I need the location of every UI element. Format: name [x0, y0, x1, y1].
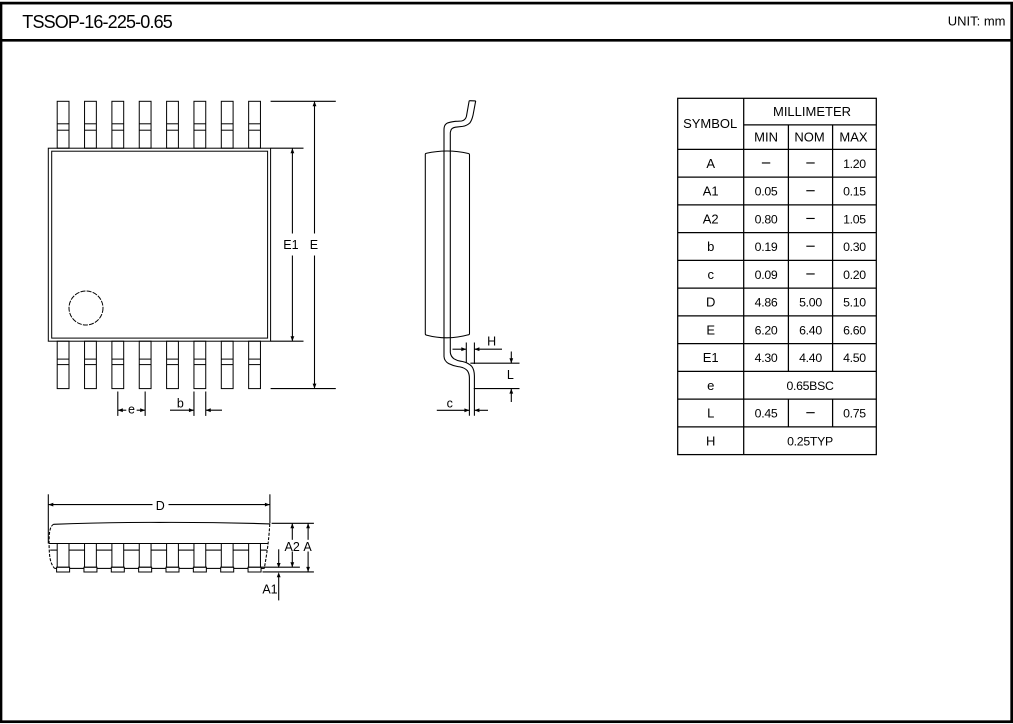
svg-text:0.45: 0.45: [755, 407, 778, 421]
svg-text:A: A: [303, 540, 312, 554]
svg-text:L: L: [707, 406, 714, 421]
svg-text:0.30: 0.30: [843, 240, 866, 254]
svg-text:A2: A2: [703, 211, 719, 226]
svg-text:A1: A1: [703, 184, 719, 199]
svg-text:0.80: 0.80: [755, 212, 778, 226]
svg-text:1.05: 1.05: [843, 212, 866, 226]
svg-text:E: E: [706, 322, 715, 337]
svg-text:e: e: [128, 402, 135, 416]
svg-text:4.30: 4.30: [755, 351, 778, 365]
svg-text:b: b: [177, 396, 184, 410]
svg-text:c: c: [447, 396, 453, 410]
svg-text:0.05: 0.05: [755, 185, 778, 199]
svg-text:1.20: 1.20: [843, 157, 866, 171]
svg-text:0.09: 0.09: [755, 268, 778, 282]
svg-text:E: E: [310, 238, 318, 252]
svg-text:0.15: 0.15: [843, 185, 866, 199]
svg-text:5.10: 5.10: [843, 296, 866, 310]
svg-text:D: D: [706, 295, 715, 310]
svg-text:4.86: 4.86: [755, 296, 778, 310]
svg-text:4.50: 4.50: [843, 351, 866, 365]
svg-text:UNIT: mm: UNIT: mm: [948, 14, 1006, 29]
svg-text:A2: A2: [285, 540, 300, 554]
svg-text:MAX: MAX: [839, 130, 868, 145]
svg-text:0.65BSC: 0.65BSC: [786, 379, 834, 393]
svg-text:H: H: [487, 334, 496, 348]
svg-text:L: L: [507, 368, 514, 382]
svg-text:E1: E1: [703, 350, 719, 365]
svg-text:e: e: [707, 378, 714, 393]
svg-text:6.20: 6.20: [755, 323, 778, 337]
svg-text:5.00: 5.00: [799, 296, 822, 310]
svg-text:A: A: [706, 156, 715, 171]
svg-text:6.40: 6.40: [799, 323, 822, 337]
svg-text:MIN: MIN: [754, 130, 778, 145]
svg-text:MILLIMETER: MILLIMETER: [773, 104, 851, 119]
svg-text:0.19: 0.19: [755, 240, 778, 254]
svg-text:A1: A1: [262, 582, 277, 596]
svg-text:c: c: [707, 267, 714, 282]
svg-text:4.40: 4.40: [799, 351, 822, 365]
svg-text:SYMBOL: SYMBOL: [683, 116, 737, 131]
svg-text:TSSOP-16-225-0.65: TSSOP-16-225-0.65: [22, 12, 172, 32]
svg-text:H: H: [706, 433, 715, 448]
svg-text:NOM: NOM: [794, 130, 824, 145]
svg-text:0.25TYP: 0.25TYP: [787, 434, 833, 448]
svg-text:6.60: 6.60: [843, 323, 866, 337]
svg-text:b: b: [707, 239, 714, 254]
svg-text:0.75: 0.75: [843, 407, 866, 421]
svg-text:D: D: [156, 499, 165, 513]
svg-text:E1: E1: [283, 238, 298, 252]
svg-text:0.20: 0.20: [843, 268, 866, 282]
